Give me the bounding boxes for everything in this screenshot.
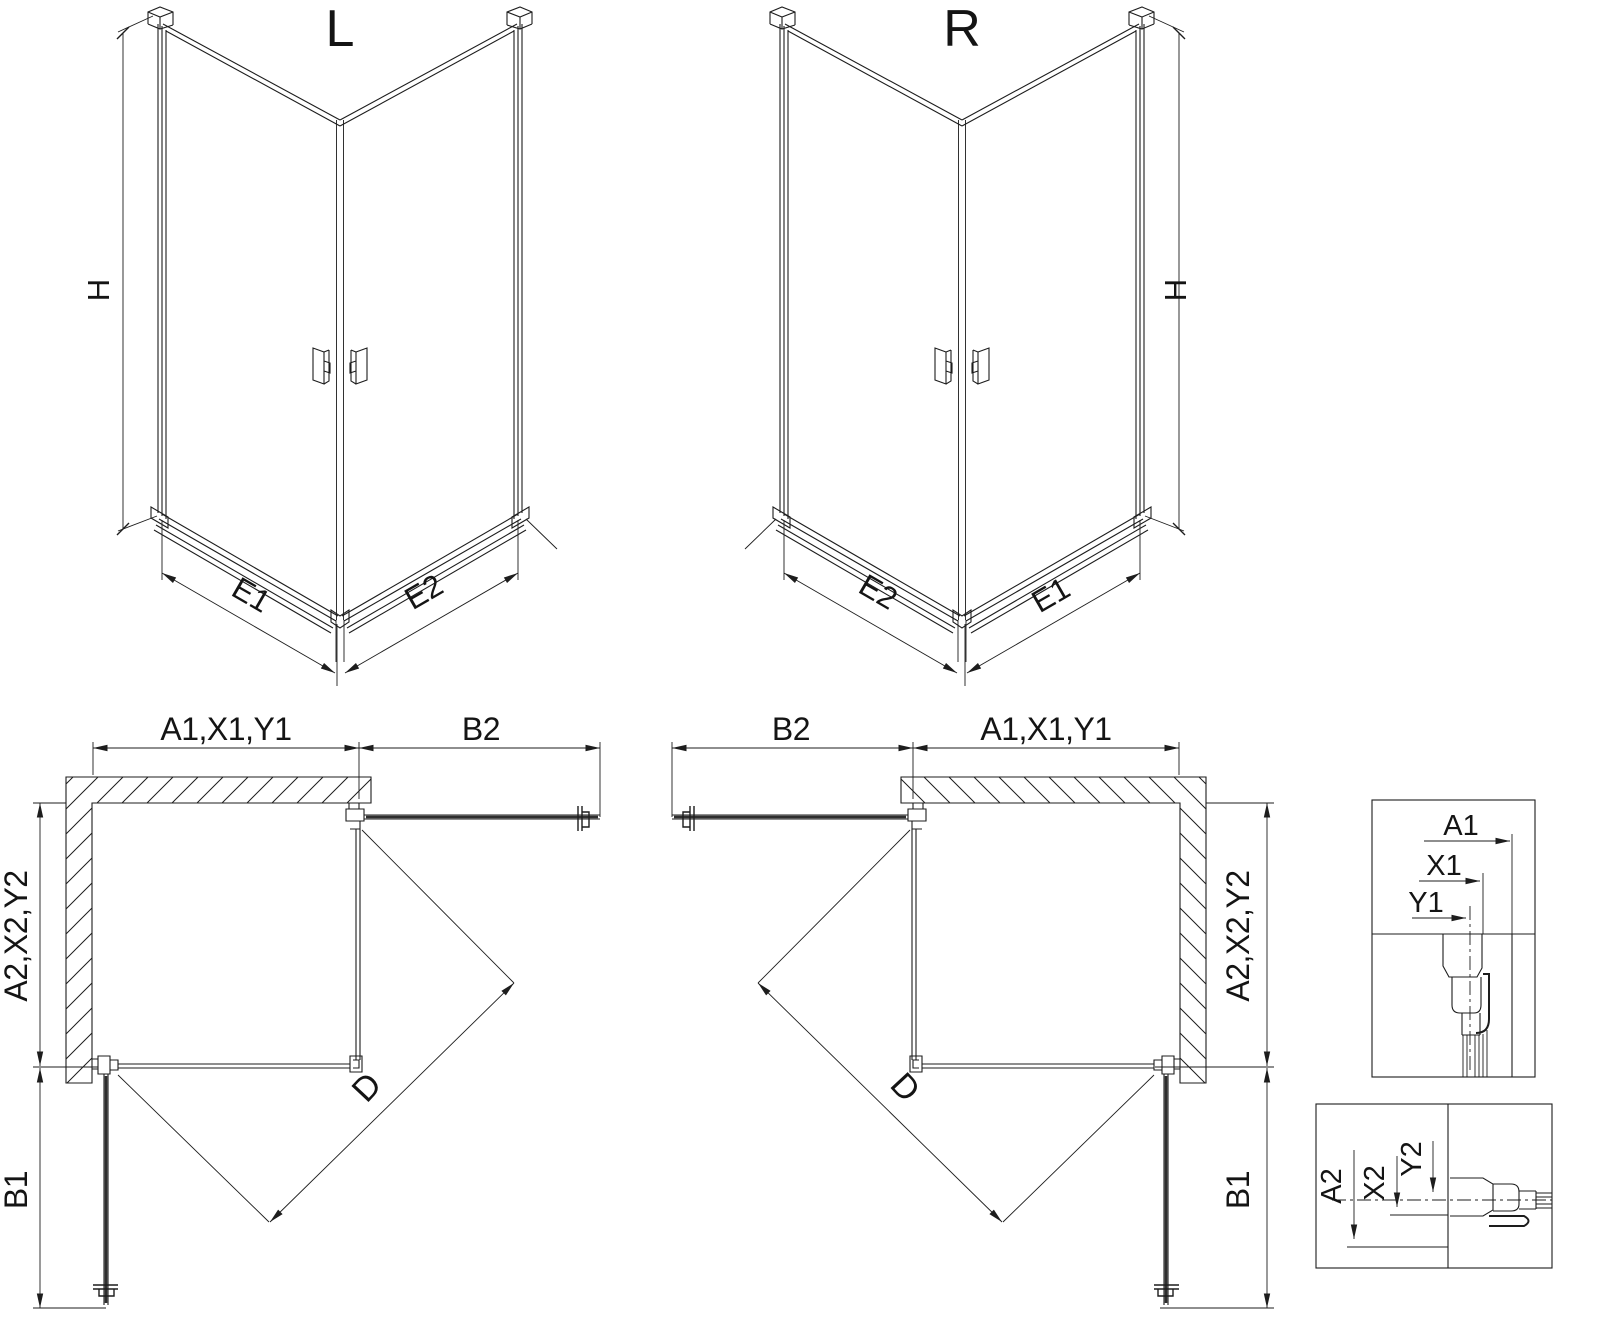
technical-drawing-page: L H E1 E2 R H E2 E1 A1,X1,Y1 B2 A2,X2,Y2…: [0, 0, 1600, 1318]
detail-x2-label: X2: [1359, 1165, 1391, 1200]
plan-right-door-top-label: B2: [772, 711, 810, 747]
detail-x1-label: X1: [1426, 850, 1461, 882]
detail-a2-label: A2: [1316, 1168, 1348, 1203]
plan-left-wall-width-label: A1,X1,Y1: [160, 711, 291, 747]
detail-y2-label: Y2: [1396, 1141, 1428, 1176]
drawing-background: [0, 0, 1600, 1318]
iso-right-variant-label: R: [943, 0, 981, 58]
iso-left-height-label: H: [81, 279, 116, 301]
shower-enclosure-technical-drawing: L H E1 E2 R H E2 E1 A1,X1,Y1 B2 A2,X2,Y2…: [0, 0, 1600, 1318]
detail-y1-label: Y1: [1408, 887, 1443, 919]
plan-right-wall-width-label: A1,X1,Y1: [980, 711, 1111, 747]
iso-right-height-label: H: [1158, 279, 1193, 301]
iso-left-variant-label: L: [326, 0, 355, 58]
plan-left-door-side-label: B1: [0, 1171, 34, 1209]
plan-right-door-side-label: B1: [1220, 1171, 1256, 1209]
plan-left-wall-depth-label: A2,X2,Y2: [0, 870, 34, 1001]
plan-left-door-top-label: B2: [462, 711, 500, 747]
plan-right-wall-depth-label: A2,X2,Y2: [1220, 870, 1256, 1001]
detail-a1-label: A1: [1443, 810, 1478, 842]
